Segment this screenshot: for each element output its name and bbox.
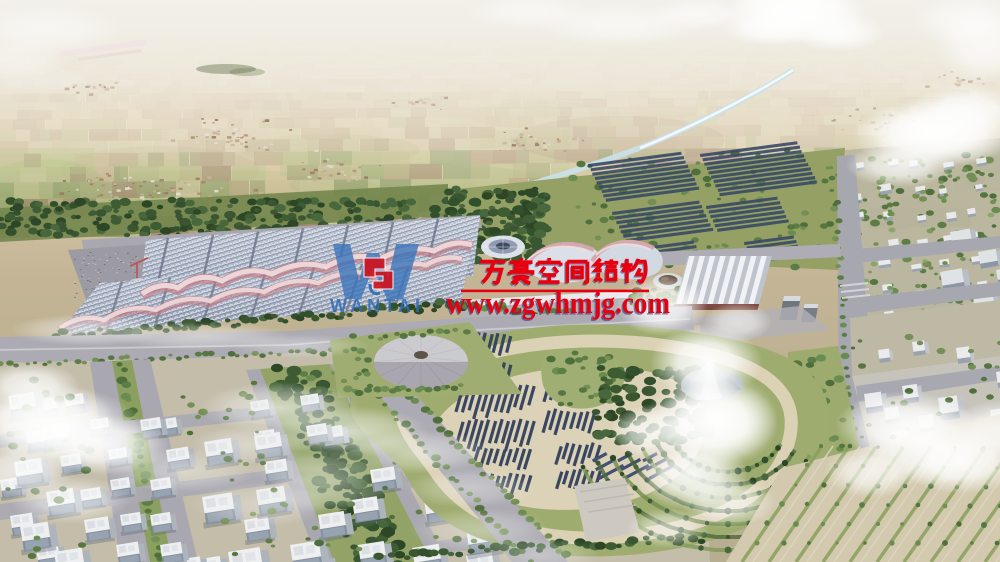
svg-text:www.zgwhmjg.com: www.zgwhmjg.com [446,285,670,320]
svg-text:WANTAI: WANTAI [330,296,422,316]
